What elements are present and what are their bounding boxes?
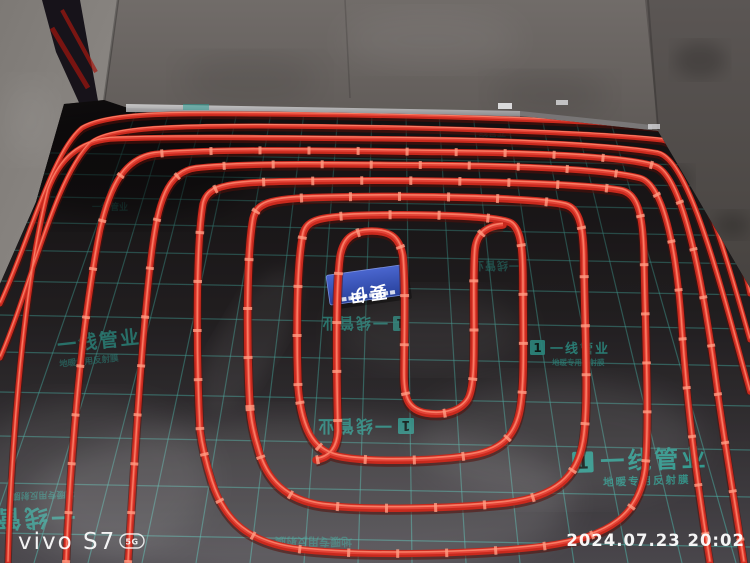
svg-text:5G: 5G [125,538,138,547]
watermark-device: vivo S7 [18,529,116,555]
watermark-timestamp: 2024.07.23 20:02 [566,531,745,550]
photo-underfloor-heating-installation: 1 一线管业 地暖专用反射膜 一线管业 地暖专用反射膜 1 一线管业 1 一线管… [0,0,750,563]
